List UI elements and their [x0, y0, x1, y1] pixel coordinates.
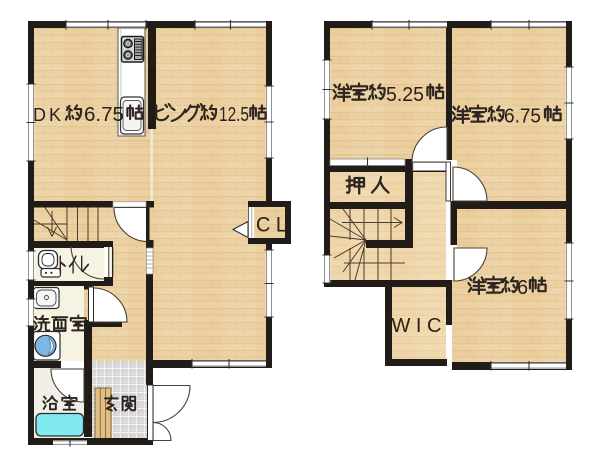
svg-text:6: 6 — [517, 277, 528, 299]
svg-text:D: D — [33, 105, 46, 125]
svg-text:5.25: 5.25 — [386, 84, 424, 106]
svg-text:C L: C L — [256, 214, 287, 237]
svg-text:6.75: 6.75 — [504, 106, 541, 128]
svg-text:W I C: W I C — [392, 315, 442, 337]
svg-text:12.5: 12.5 — [219, 104, 249, 126]
svg-text:6.75: 6.75 — [84, 104, 124, 126]
svg-text:K: K — [49, 105, 61, 125]
